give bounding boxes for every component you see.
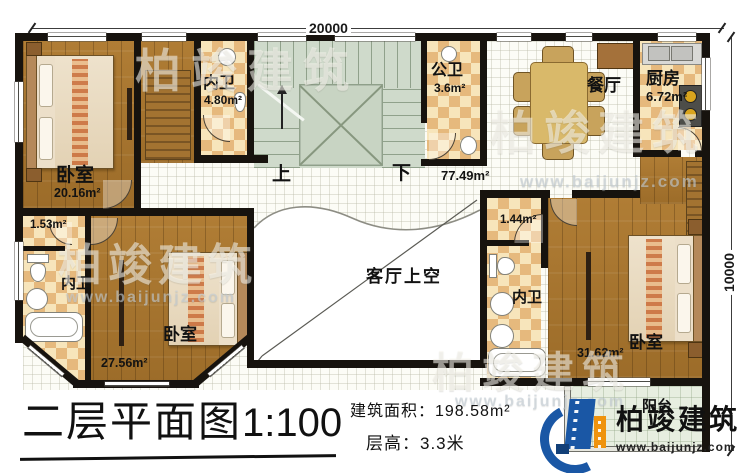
window xyxy=(497,33,531,41)
window xyxy=(258,33,306,41)
dimension-top-value: 20000 xyxy=(306,21,351,35)
interior-wall xyxy=(480,190,550,198)
closet-area-label: 1.44m² xyxy=(500,215,536,227)
wardrobe xyxy=(145,70,191,160)
dimension-line-right xyxy=(731,36,732,452)
kitchen-sink-icon xyxy=(671,46,693,61)
kitchen-label: 厨房 xyxy=(646,70,680,87)
interior-wall xyxy=(23,246,65,251)
window xyxy=(566,33,592,41)
window xyxy=(48,33,106,41)
brand-name: 柏竣建筑 xyxy=(616,406,740,434)
dining-chair xyxy=(587,106,605,136)
bathtub-icon xyxy=(25,312,83,342)
bathtub-icon xyxy=(488,348,546,377)
dimension-line-top xyxy=(32,28,724,29)
stair-direction-arrow xyxy=(281,93,283,129)
closet-area-label: 1.53m² xyxy=(30,220,66,232)
bedroom-label: 卧室 xyxy=(56,166,94,185)
nightstand xyxy=(26,168,42,182)
dining-chair xyxy=(513,72,531,102)
sink-icon xyxy=(490,292,514,316)
kitchen-area-label: 6.72m² xyxy=(646,90,687,103)
bedroom-area-label: 27.56m² xyxy=(101,357,148,370)
toilet-icon xyxy=(489,254,497,278)
hall-area-label: 77.49m² xyxy=(441,169,489,182)
interior-wall xyxy=(194,41,201,163)
tv-console xyxy=(119,260,124,346)
interior-wall xyxy=(572,190,640,198)
bed-blanket xyxy=(629,236,675,341)
plan-scale: 1:100 xyxy=(242,401,342,445)
sink-icon xyxy=(26,288,48,310)
dining-chair xyxy=(542,142,574,160)
sink-icon xyxy=(218,48,236,66)
interior-wall xyxy=(194,155,268,163)
stair-treads xyxy=(254,41,425,88)
bed-pillows xyxy=(675,236,693,341)
interior-wall xyxy=(695,150,702,157)
sink-icon xyxy=(460,136,477,155)
bath-label: 内卫 xyxy=(512,290,542,305)
brand-logo-tower-icon xyxy=(594,416,606,448)
stair-arrow-head xyxy=(277,85,287,94)
bed-pillows xyxy=(37,56,55,168)
dining-cabinet xyxy=(597,43,637,69)
stove-burner-icon xyxy=(684,108,697,121)
interior-wall xyxy=(247,41,254,163)
floor-plan-page: 20000 10000 xyxy=(0,0,750,473)
dining-label: 餐厅 xyxy=(587,77,621,94)
title-underline xyxy=(20,454,336,460)
sink-icon xyxy=(441,46,457,62)
building-area-text: 建筑面积：198.58m² xyxy=(350,404,511,420)
bed xyxy=(26,55,114,169)
interior-wall xyxy=(421,159,487,166)
window xyxy=(658,33,696,41)
dining-table xyxy=(530,62,588,144)
sink-icon xyxy=(490,324,514,348)
window xyxy=(142,33,186,41)
bedroom-bottomleft-block: 1.53m² 内卫 卧室 27.56m² xyxy=(23,216,249,384)
bed-headboard xyxy=(27,56,37,168)
brand-logo-tower-icon xyxy=(564,399,595,449)
bath-label: 内卫 xyxy=(61,276,91,291)
stair-up-label: 上 xyxy=(272,165,291,184)
dining-chair xyxy=(513,106,531,136)
window xyxy=(105,382,169,386)
window xyxy=(15,82,23,142)
bath-label: 内卫 xyxy=(203,76,235,92)
stair-treads xyxy=(382,88,425,168)
brand-url: www.baijunjz.com xyxy=(616,441,736,453)
public-bath-area-label: 3.6m² xyxy=(434,82,465,94)
floor-height-text: 层高：3.3米 xyxy=(366,435,465,452)
brand-logo-base-icon xyxy=(556,444,569,454)
plan-title: 二层平面图 xyxy=(22,398,242,445)
kitchen-sink-icon xyxy=(648,46,670,61)
stairwell xyxy=(254,41,425,168)
interior-wall xyxy=(134,41,141,208)
tv-console xyxy=(127,88,132,140)
interior-wall xyxy=(15,208,254,216)
balcony-door xyxy=(588,378,650,386)
window xyxy=(702,58,710,110)
interior-wall xyxy=(633,41,640,157)
bath-area-label: 4.80m² xyxy=(204,94,242,106)
bedroom-label: 卧室 xyxy=(629,334,663,351)
interior-wall xyxy=(633,150,681,157)
interior-wall xyxy=(421,41,427,123)
bedroom-label: 卧室 xyxy=(163,326,197,343)
dimension-right-value: 10000 xyxy=(722,250,736,295)
interior-wall xyxy=(480,41,487,166)
bedroom-area-label: 31.62m² xyxy=(577,347,624,360)
stair-landing xyxy=(300,85,382,165)
nightstand xyxy=(26,42,42,56)
bed-blanket xyxy=(55,56,113,168)
toilet-icon xyxy=(27,254,49,263)
window xyxy=(15,242,23,300)
bed xyxy=(628,235,704,342)
bed-headboard xyxy=(237,253,247,345)
bed-pillows xyxy=(219,253,237,345)
void-label: 客厅上空 xyxy=(366,268,442,285)
plan-title-row: 二层平面图1:100 xyxy=(22,401,342,443)
interior-wall xyxy=(247,360,487,368)
interior-wall xyxy=(480,198,487,368)
bedroom-area-label: 20.16m² xyxy=(54,187,101,200)
public-bath-label: 公卫 xyxy=(431,63,463,79)
tv-console xyxy=(586,252,591,340)
stair-down-label: 下 xyxy=(392,164,411,183)
